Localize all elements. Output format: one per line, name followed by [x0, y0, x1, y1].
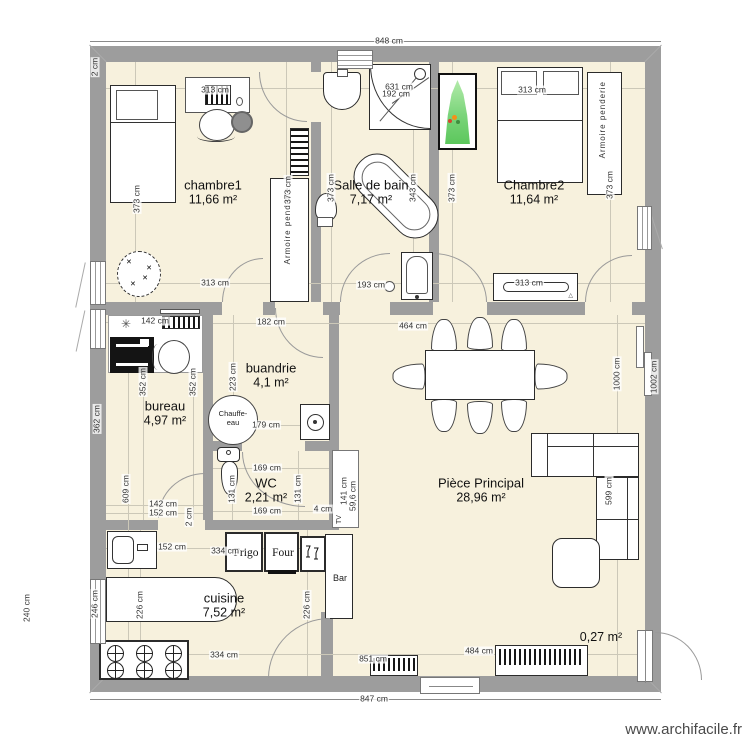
dim-label: 2 cm [185, 507, 194, 527]
pouf-icon: ✕ ✕ ✕ ✕ [117, 251, 161, 297]
sliding-door-bottom-step [429, 686, 473, 687]
dim-label: 373 cm [606, 170, 615, 200]
chauffe-eau-label-1: Chauffe- [209, 409, 257, 418]
stove-burner [107, 662, 124, 679]
dim-label: 851 cm [358, 655, 388, 664]
dim-label: 609 cm [122, 474, 131, 504]
wall-cuisine-top-2 [205, 520, 339, 530]
window-left-chambre1 [90, 261, 106, 305]
room-area: 4,1 m² [246, 376, 297, 390]
dim-label: 373 cm [284, 175, 293, 205]
dim-label: 131 cm [294, 474, 303, 504]
room-name: WC [245, 476, 287, 491]
room-label-entry-nook: 0,27 m² [580, 630, 622, 644]
dim-label: 334 cm [210, 547, 240, 556]
dim-label: 59,6 cm [349, 480, 358, 512]
bookshelf-large [495, 645, 588, 676]
stove-burner [165, 662, 182, 679]
dim-label: 599 cm [605, 476, 614, 506]
window-left-bureau [90, 309, 106, 349]
dim-label: 373 cm [448, 173, 457, 203]
dim-label: 193 cm [356, 281, 386, 290]
room-label-salle-de-bain: Salle de bain 7,17 m² [333, 178, 408, 207]
dim-label: 343 cm [409, 173, 418, 203]
dim-label: 182 cm [256, 318, 286, 327]
dim-label: 1002 cm [650, 360, 659, 395]
dim-label: 352 cm [189, 367, 198, 397]
washing-machine [300, 404, 330, 440]
dim-label: 169 cm [252, 507, 282, 516]
dim-label: 484 cm [464, 647, 494, 656]
oven-black-bar [268, 570, 296, 574]
wine-glasses-icon [304, 545, 322, 565]
floor-plan-canvas: ✕ ✕ ✕ ✕ Armoire penderie Armoire penderi [0, 0, 750, 750]
printer-paper [140, 339, 149, 346]
bed-pillow [116, 90, 158, 120]
chauffe-eau-label-2: eau [209, 418, 257, 427]
sofa-back-line [627, 478, 628, 559]
bed-fold-line [111, 122, 175, 123]
room-label-cuisine: cuisine 7,52 m² [203, 591, 245, 620]
dresser-mark: △ [568, 292, 573, 299]
room-area: 11,66 m² [184, 193, 242, 207]
sofa-vertical [596, 477, 639, 560]
dim-label: 847 cm [359, 695, 389, 704]
dim-label: 313 cm [514, 279, 544, 288]
room-name: chambre1 [184, 178, 242, 193]
dim-label: 179 cm [251, 421, 281, 430]
stove-burner [107, 645, 124, 662]
printer-slot [116, 363, 148, 366]
room-area: 11,64 m² [504, 193, 565, 207]
plant-frame [438, 73, 477, 150]
bureau-chair-back [152, 344, 163, 370]
wall-mid-3 [323, 302, 340, 315]
bar-counter: Bar [325, 534, 353, 619]
water-heater [401, 252, 433, 300]
dim-label: 373 cm [327, 173, 336, 203]
dim-label: 352 cm [139, 367, 148, 397]
water-heater-body [406, 256, 428, 294]
sofa-back-line [547, 446, 638, 447]
bar-label: Bar [333, 573, 347, 583]
wall-cuisine-top-1 [106, 520, 158, 530]
sofa-armrest-line [547, 434, 548, 476]
dim-label: 848 cm [374, 37, 404, 46]
washer-dot [313, 420, 317, 424]
room-label-buandrie: buandrie 4,1 m² [246, 361, 297, 390]
room-area: 2,21 m² [245, 491, 287, 505]
glass-cabinet [300, 536, 326, 572]
sofa-cushion-line [597, 519, 638, 520]
flower-dot [448, 119, 452, 123]
stove-burner [136, 662, 153, 679]
desk-chair-back [197, 131, 235, 142]
wall-mid-5 [487, 302, 585, 315]
dim-label: 152 cm [157, 543, 187, 552]
sink-basin [112, 536, 134, 564]
dim-label: 142 cm [140, 317, 170, 326]
room-name: buandrie [246, 361, 297, 376]
shelf-side-icon [290, 128, 309, 176]
gas-stove [99, 640, 189, 680]
room-area: 4,97 m² [144, 414, 186, 428]
bookshelf-books [499, 649, 584, 665]
wall-mid-6 [632, 302, 645, 315]
room-name: Pièce Principal [438, 476, 524, 491]
shower-head [414, 68, 426, 80]
wardrobe-label: Armoire penderie [598, 81, 607, 158]
dim-label: 226 cm [303, 590, 312, 620]
dining-table [425, 350, 535, 400]
room-label-wc: WC 2,21 m² [245, 476, 287, 505]
window-right-chambre2 [637, 206, 652, 250]
tv-label: TV [336, 515, 343, 524]
mouse-icon [236, 97, 243, 106]
dim-label: 1000 cm [613, 357, 622, 392]
room-area: 7,17 m² [333, 193, 408, 207]
oven: Four [264, 532, 299, 572]
dim-label: 4 cm [313, 505, 333, 514]
sink-tap [337, 69, 348, 77]
room-area: 0,27 m² [580, 630, 622, 644]
wall-chambre1-sdb-upper [311, 62, 321, 72]
room-name: cuisine [203, 591, 245, 606]
archifacile-link[interactable]: www.archifacile.fr [625, 721, 742, 738]
wall-mid-4 [390, 302, 433, 315]
room-area: 7,52 m² [203, 606, 245, 620]
kitchen-sink [107, 531, 157, 569]
window-open-pane-line [76, 310, 86, 351]
sofa-horizontal [531, 433, 639, 477]
room-name: Chambre2 [504, 178, 565, 193]
dim-label: 362 cm [93, 404, 102, 434]
bed-pillow [543, 71, 579, 95]
room-label-piece-principale: Pièce Principal 28,96 m² [438, 476, 524, 505]
wc-button [226, 450, 231, 455]
dim-label: 464 cm [398, 322, 428, 331]
room-label-chambre2: Chambre2 11,64 m² [504, 178, 565, 207]
sink-faucet [137, 544, 148, 551]
sofa-chaise [552, 538, 600, 588]
toilet-sdb-tank [317, 217, 333, 227]
single-bed [110, 85, 176, 203]
entrance-door-frame [637, 630, 653, 682]
sliding-door-right-panel1 [636, 326, 644, 368]
dim-label: 240 cm [23, 593, 32, 623]
plant-icon [444, 80, 471, 144]
bed-fold-line [498, 120, 582, 121]
dim-label: 152 cm [148, 509, 178, 518]
dim-label: 169 cm [252, 464, 282, 473]
water-heater-valve [415, 295, 419, 299]
oven-label: Four [272, 547, 294, 559]
stove-burner [165, 645, 182, 662]
window-open-pane-line [75, 262, 86, 307]
stove-burner [136, 645, 153, 662]
room-name: bureau [144, 399, 186, 414]
dim-label: 223 cm [229, 362, 238, 392]
room-label-bureau: bureau 4,97 m² [144, 399, 186, 428]
dim-label: 313 cm [200, 86, 230, 95]
room-area: 28,96 m² [438, 491, 524, 505]
dim-label: 246 cm [91, 589, 100, 619]
dim-label: 2 cm [91, 57, 100, 77]
web-icon: ✳ [121, 317, 131, 331]
bathroom-sink [323, 72, 361, 110]
dim-label: 313 cm [200, 279, 230, 288]
flower-dot [456, 120, 460, 124]
dim-label: 373 cm [133, 184, 142, 214]
stool-icon [231, 111, 253, 133]
dim-label: 313 cm [517, 86, 547, 95]
vent-window-top [337, 50, 373, 69]
dim-label: 226 cm [136, 590, 145, 620]
sofa-cushion-line [593, 434, 594, 476]
entrance-door-frame-line [645, 631, 646, 683]
room-name: Salle de bain [333, 178, 408, 193]
sliding-door-bottom [420, 677, 480, 694]
dim-label: 192 cm [381, 90, 411, 99]
bureau-shelf [160, 309, 200, 314]
entrance-door-swing-arc [655, 632, 702, 680]
wall-mid-2 [263, 302, 275, 315]
dim-label: 334 cm [209, 651, 239, 660]
dim-label: 131 cm [228, 474, 237, 504]
wc-cistern [217, 447, 240, 462]
room-label-chambre1: chambre1 11,66 m² [184, 178, 242, 207]
